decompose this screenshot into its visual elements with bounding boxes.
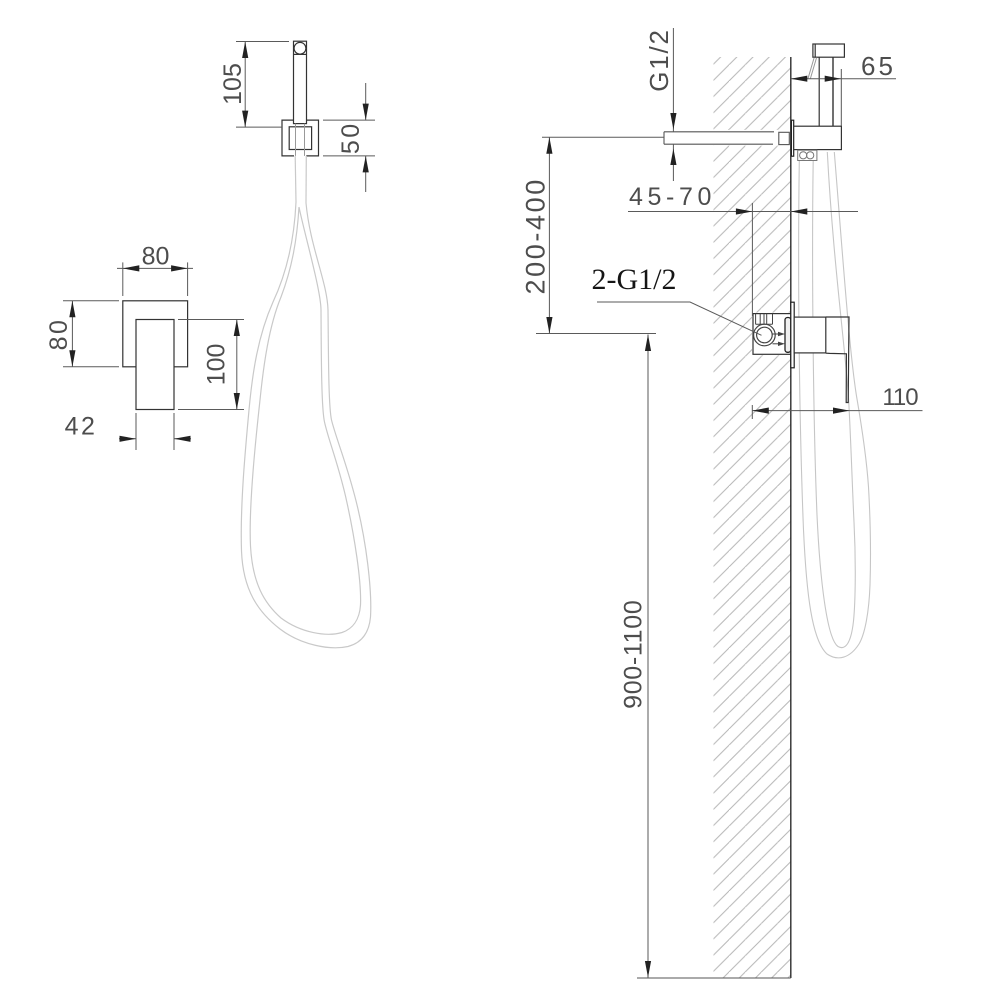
svg-text:2-G1/2: 2-G1/2 <box>592 263 677 296</box>
svg-text:G1/2: G1/2 <box>644 28 674 92</box>
svg-text:900-1100: 900-1100 <box>620 599 648 708</box>
svg-text:110: 110 <box>882 384 918 411</box>
svg-text:100: 100 <box>203 344 231 386</box>
svg-text:105: 105 <box>219 63 247 105</box>
svg-text:80: 80 <box>45 318 73 351</box>
svg-text:45-70: 45-70 <box>629 183 716 211</box>
svg-text:42: 42 <box>65 413 98 441</box>
svg-text:50: 50 <box>337 121 365 154</box>
svg-text:65: 65 <box>861 51 896 81</box>
svg-text:80: 80 <box>142 243 170 271</box>
svg-text:200-400: 200-400 <box>521 177 551 294</box>
